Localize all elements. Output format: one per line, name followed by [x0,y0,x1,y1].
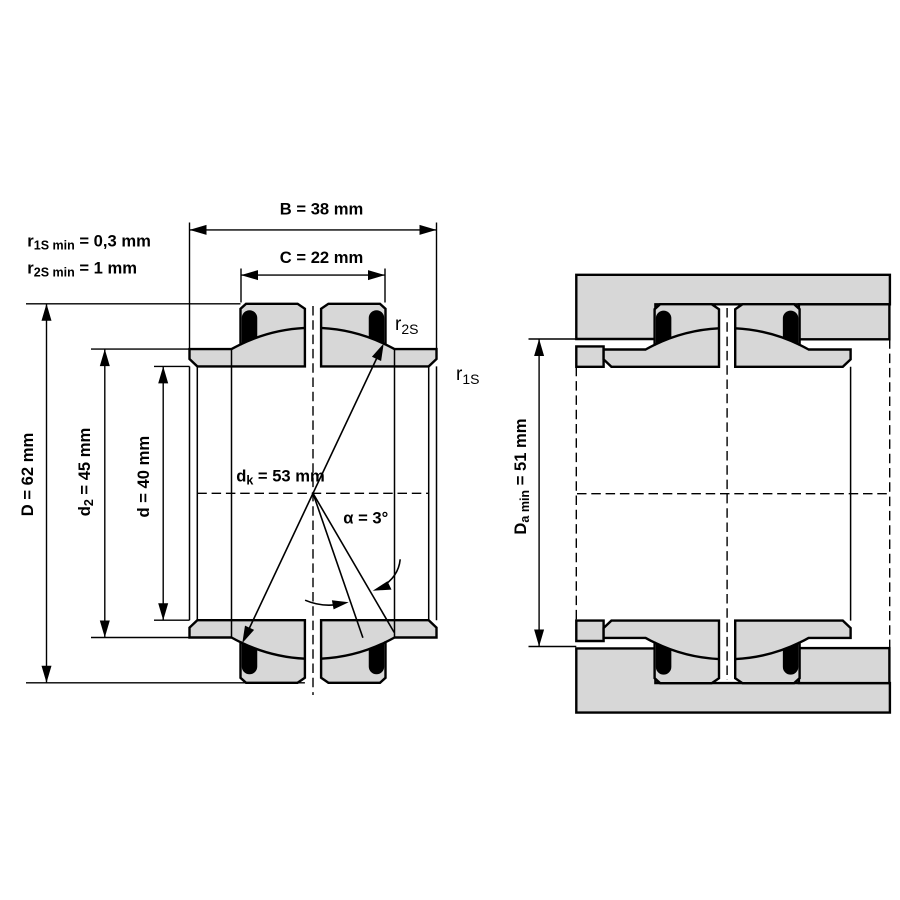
svg-text:α = 3°: α = 3° [343,509,388,528]
svg-text:B = 38 mm: B = 38 mm [280,199,363,218]
svg-text:d = 40 mm: d = 40 mm [134,436,153,518]
svg-text:D = 62 mm: D = 62 mm [18,433,37,516]
svg-text:C = 22 mm: C = 22 mm [280,248,363,267]
